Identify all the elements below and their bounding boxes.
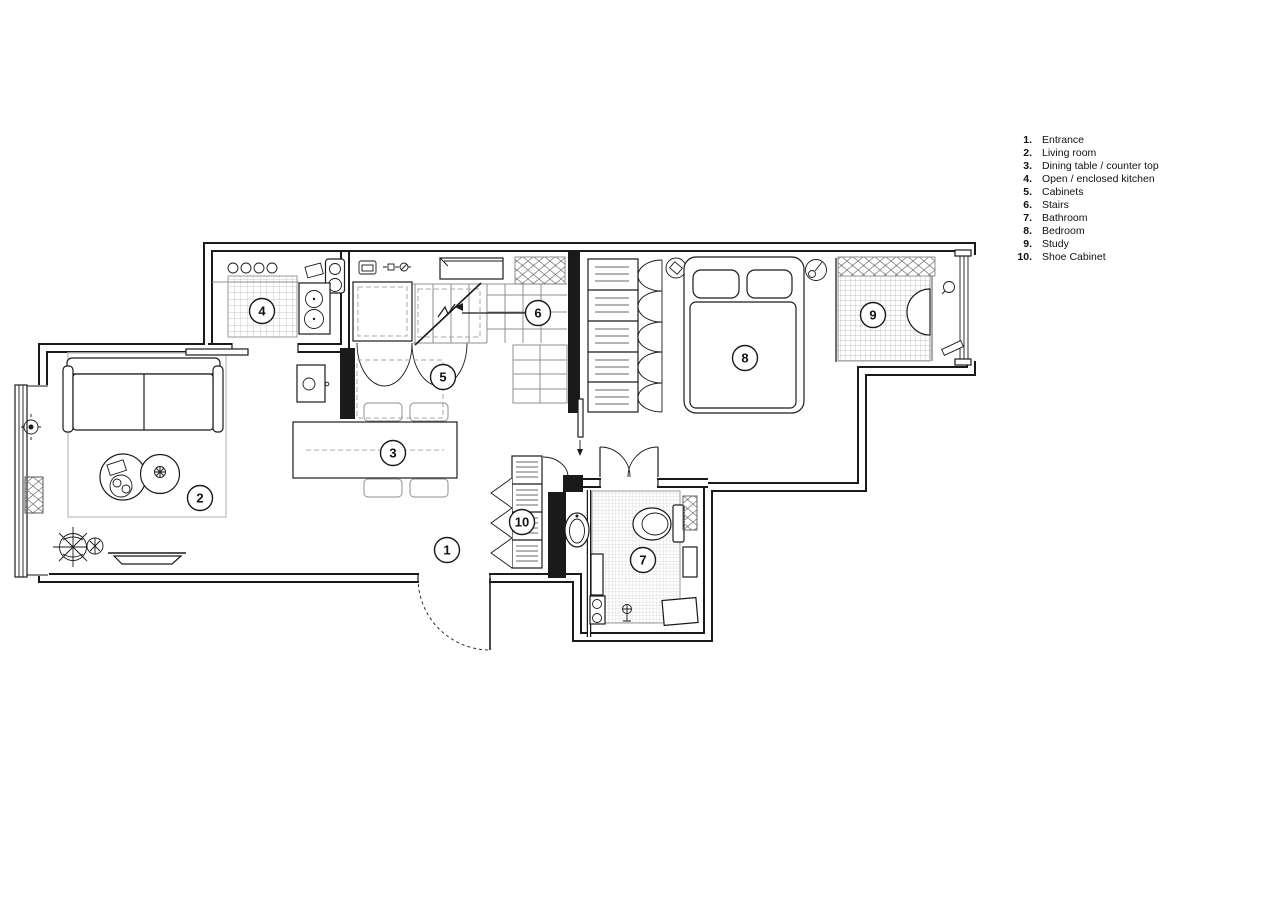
sink-basin-icon: [565, 513, 589, 547]
legend-item: 8. Bedroom: [1016, 225, 1159, 238]
room-marker-number: 5: [439, 370, 446, 385]
kitchen-sliding-door: [186, 349, 248, 355]
pillow: [747, 270, 792, 298]
room-marker-number: 2: [196, 491, 203, 506]
legend-item-number: 5.: [1016, 186, 1032, 199]
room-marker-number: 9: [869, 308, 876, 323]
room-marker-number: 8: [741, 351, 748, 366]
bath-cabinet: [591, 554, 603, 595]
legend-item: 6. Stairs: [1016, 199, 1159, 212]
legend-item-label: Bedroom: [1042, 225, 1085, 238]
burner-icons: [228, 263, 277, 273]
room-marker-number: 1: [443, 543, 450, 558]
legend-item-label: Bathroom: [1042, 212, 1088, 225]
cabinet-rug: [357, 360, 443, 418]
legend-item-label: Open / enclosed kitchen: [1042, 173, 1155, 186]
stove-icon: [299, 283, 330, 334]
legend-item-label: Stairs: [1042, 199, 1069, 212]
floorplan-page: 12345678910 1. Entrance 2. Living room 3…: [0, 0, 1280, 905]
legend-item: 7. Bathroom: [1016, 212, 1159, 225]
dining-area: [293, 403, 457, 497]
legend-item-number: 3.: [1016, 160, 1032, 173]
legend-item: 9. Study: [1016, 238, 1159, 251]
legend-item-label: Cabinets: [1042, 186, 1083, 199]
legend-item-number: 9.: [1016, 238, 1032, 251]
legend-item-label: Living room: [1042, 147, 1096, 160]
chair: [364, 479, 402, 497]
walls: [43, 247, 971, 637]
bedroom-double-doors: [600, 447, 658, 477]
entrance-door: [418, 578, 490, 650]
legend-item: 4. Open / enclosed kitchen: [1016, 173, 1159, 186]
pillow: [693, 270, 739, 298]
bath-planter: [683, 496, 697, 530]
legend-item: 2. Living room: [1016, 147, 1159, 160]
room-marker-number: 10: [515, 515, 529, 530]
legend-item-number: 7.: [1016, 212, 1032, 225]
study: [838, 276, 963, 361]
room-marker-number: 7: [639, 553, 646, 568]
bed: [684, 257, 804, 413]
legend-item-number: 1.: [1016, 134, 1032, 147]
vase-icon: [942, 282, 955, 295]
kitchen-side-cabinet: [297, 365, 329, 402]
cabinets: [353, 282, 467, 418]
legend-item-label: Shoe Cabinet: [1042, 251, 1106, 264]
pendant-lamp-icon: [806, 260, 827, 281]
washer-icon: [359, 261, 376, 274]
bedroom-sliding-door: [577, 399, 583, 456]
wardrobe: [588, 259, 662, 412]
legend-item-label: Dining table / counter top: [1042, 160, 1159, 173]
wall-bedroom-west: [568, 252, 580, 413]
legend: 1. Entrance 2. Living room 3. Dining tab…: [1016, 134, 1159, 264]
bath-mat: [662, 598, 698, 626]
tv-console: [108, 553, 186, 564]
plant-small-icon: [87, 538, 103, 554]
toilet-icon: [633, 505, 684, 542]
legend-item: 1. Entrance: [1016, 134, 1159, 147]
legend-item-number: 4.: [1016, 173, 1032, 186]
room-marker-number: 6: [534, 306, 541, 321]
legend-item-label: Entrance: [1042, 134, 1084, 147]
planter-box: [25, 477, 43, 513]
legend-item-label: Study: [1042, 238, 1069, 251]
legend-item-number: 10.: [1016, 251, 1032, 264]
legend-item: 10. Shoe Cabinet: [1016, 251, 1159, 264]
electrical-symbol-icon: [383, 263, 412, 271]
legend-item: 5. Cabinets: [1016, 186, 1159, 199]
legend-item: 3. Dining table / counter top: [1016, 160, 1159, 173]
room-marker-number: 4: [258, 304, 266, 319]
coffee-table-large: [100, 454, 146, 500]
room-marker-number: 3: [389, 446, 396, 461]
planter-strip-study: [838, 257, 935, 276]
ceiling-lamp-icon: [666, 258, 686, 278]
living-room: [53, 353, 226, 567]
chair: [410, 479, 448, 497]
utility-strip: [359, 258, 503, 279]
bedroom: [577, 257, 827, 456]
legend-item-number: 6.: [1016, 199, 1032, 212]
legend-item-number: 2.: [1016, 147, 1032, 160]
wall-kitchen-dining: [340, 348, 355, 419]
coffee-table-small: [141, 455, 180, 494]
counter-shelf: [440, 258, 503, 279]
planter-strip-stairs: [515, 257, 565, 284]
sofa: [63, 358, 223, 432]
pan-icon: [305, 263, 323, 278]
washing-machine-icon: [590, 596, 605, 624]
legend-item-number: 8.: [1016, 225, 1032, 238]
